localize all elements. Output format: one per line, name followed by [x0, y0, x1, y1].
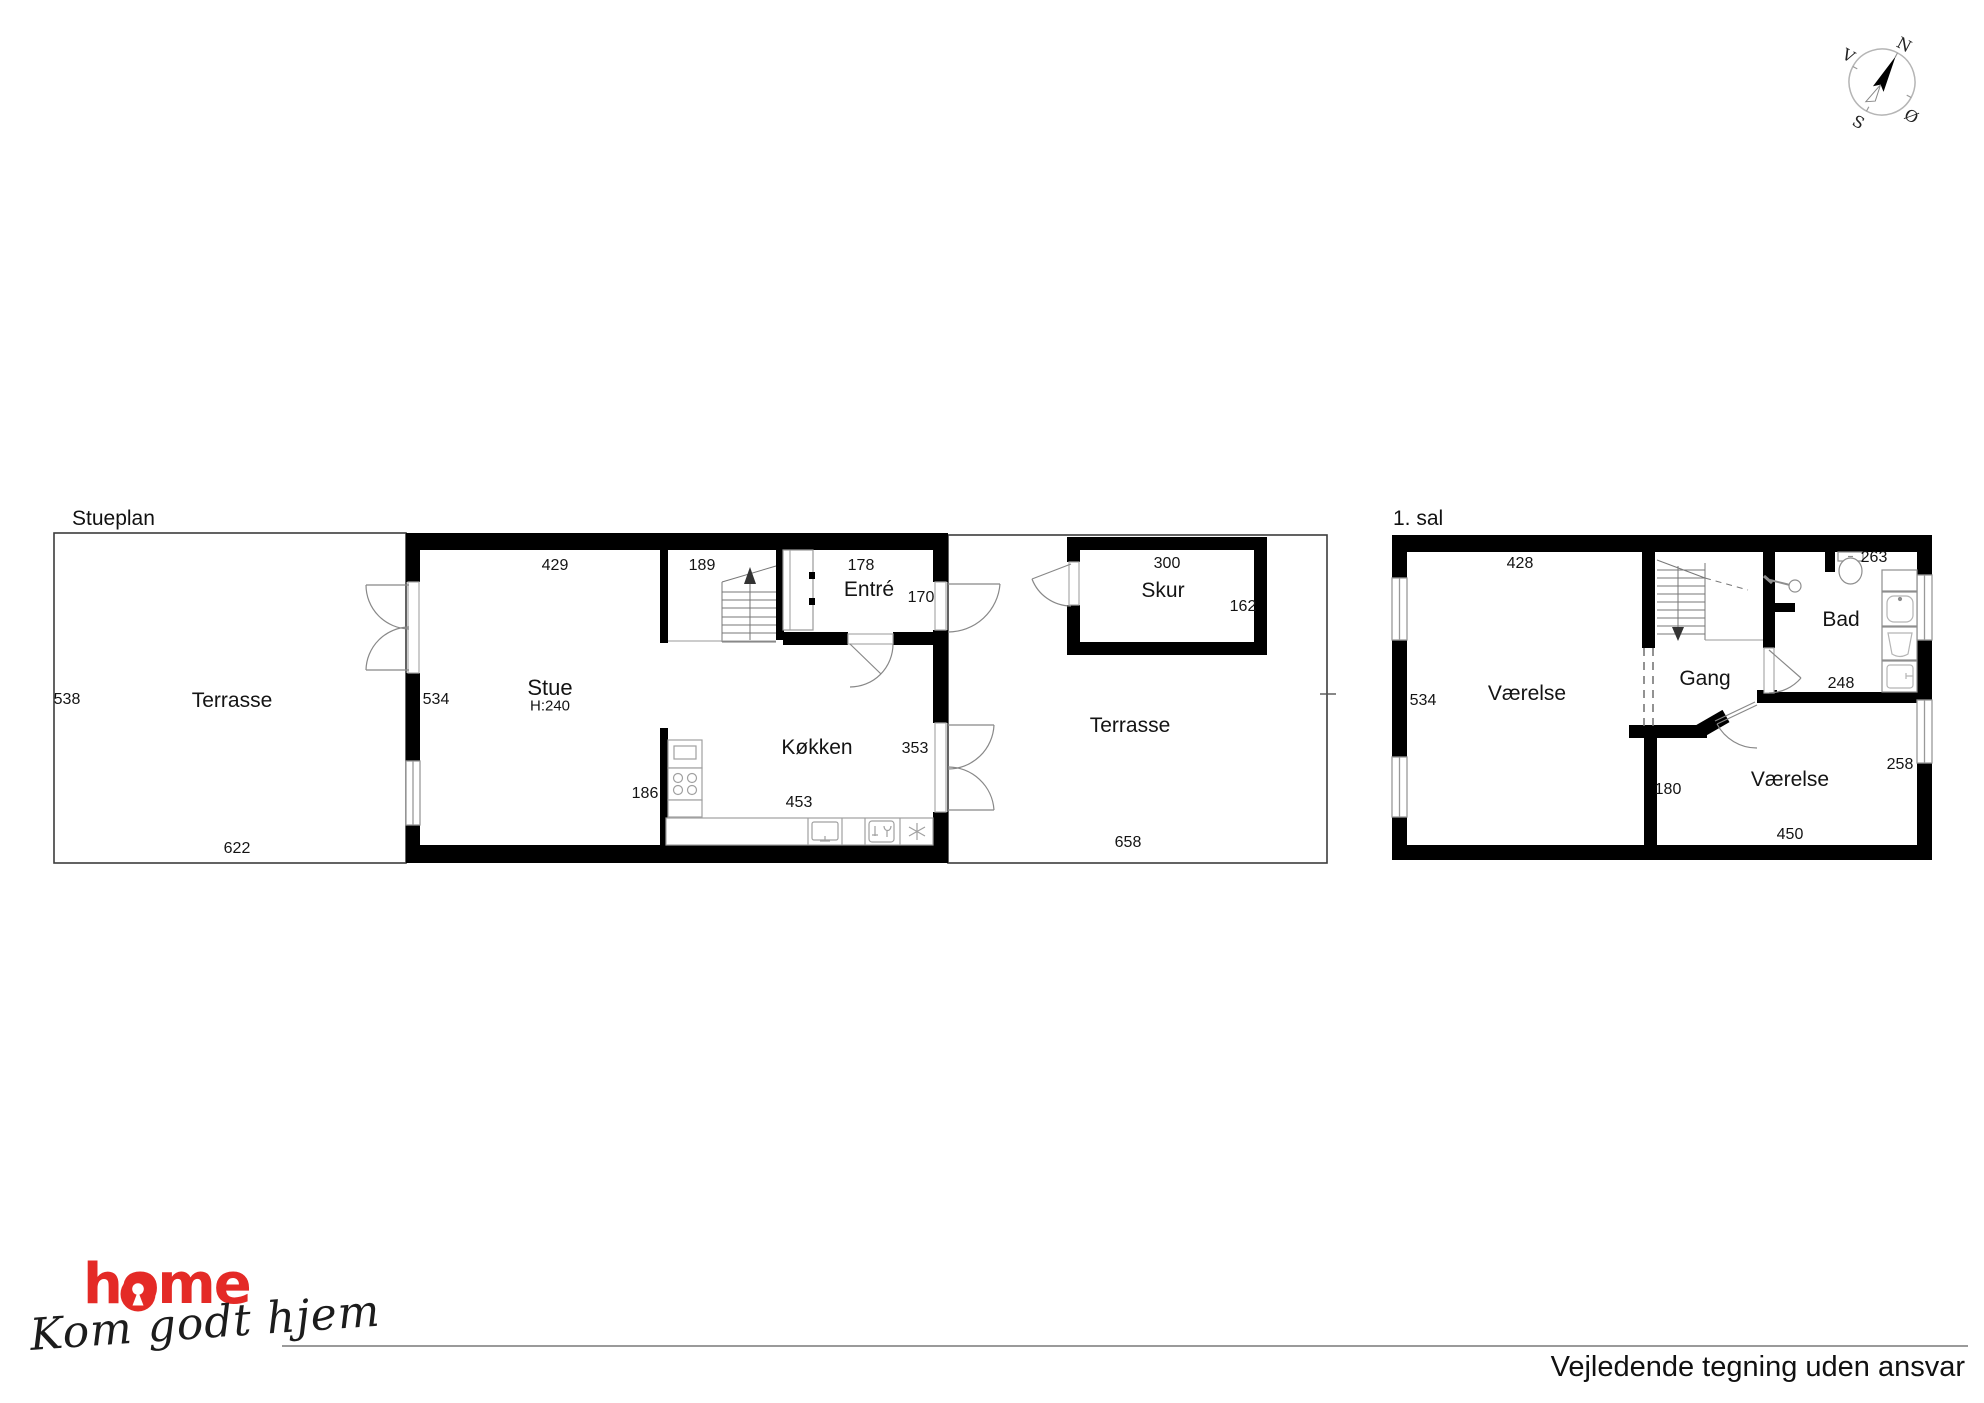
stairs-up-arrow [744, 567, 756, 584]
bath-cabinet-icon [1882, 570, 1917, 591]
dashed-wall [1644, 648, 1653, 727]
dim-stue-534: 534 [423, 691, 450, 709]
stue-terrace-door-leaf-top [366, 585, 409, 629]
shower-head-icon [1789, 580, 1801, 592]
ceiling-height-label: H:240 [530, 698, 570, 715]
floorplan-page: N Ø S V Stueplan 1. sal 538 Terrasse 622… [0, 0, 1984, 1403]
dim-bad-263: 263 [1861, 549, 1888, 567]
entrance-door-swing [948, 584, 1000, 632]
room-label-skur: Skur [1141, 579, 1184, 603]
room-label-entre: Entré [844, 578, 894, 602]
dishwasher-icon [869, 821, 894, 842]
entre-closet [783, 550, 815, 630]
stue-terrace-door-leaf-bottom [366, 627, 409, 670]
room-label-kokken: Køkken [781, 736, 852, 760]
dim-room-right-258: 258 [1887, 756, 1914, 774]
first-floor-door-jambs [1764, 648, 1774, 693]
dim-kitchen-186: 186 [632, 785, 659, 803]
terrace-right-outline [948, 535, 1327, 863]
dim-room-left-534: 534 [1410, 692, 1437, 710]
room-label-bad: Bad [1822, 608, 1859, 632]
compass-rose: N Ø S V [1813, 12, 1950, 154]
compass-label-east: Ø [1901, 105, 1922, 128]
dim-terrace-right-658: 658 [1115, 834, 1142, 852]
skur-door-swing [1032, 564, 1071, 606]
ground-floor-door-swings [366, 564, 1071, 810]
dim-kitchen-353: 353 [902, 740, 929, 758]
dim-room-right-180: 180 [1655, 781, 1682, 799]
ground-floor-stairs [668, 566, 776, 642]
dim-stue-429: 429 [542, 557, 569, 575]
dim-entre-170: 170 [908, 589, 935, 607]
first-floor-title: 1. sal [1393, 507, 1443, 531]
ground-floor-title: Stueplan [72, 507, 155, 531]
room-label-vaerelse-right: Værelse [1751, 768, 1829, 792]
dim-room-right-450: 450 [1777, 826, 1804, 844]
entre-kitchen-door-swing [850, 644, 893, 687]
dim-stairs-189: 189 [689, 557, 716, 575]
room-label-gang: Gang [1679, 667, 1730, 691]
compass-label-south: S [1849, 111, 1868, 133]
room-label-vaerelse-left: Værelse [1488, 682, 1566, 706]
room-label-terrasse-right: Terrasse [1090, 714, 1171, 738]
kitchen-terrace-door-leaf-bottom [948, 767, 994, 810]
room-label-terrasse-left: Terrasse [192, 689, 273, 713]
dim-skur-162: 162 [1230, 598, 1257, 616]
dim-kitchen-453: 453 [786, 794, 813, 812]
floorplan-drawing: N Ø S V [0, 0, 1984, 1403]
ground-floor-windows [406, 761, 420, 825]
cooktop-icon [668, 768, 702, 800]
dim-bad-248: 248 [1828, 675, 1855, 693]
disclaimer-text: Vejledende tegning uden ansvar [1551, 1351, 1965, 1384]
dim-entre-178: 178 [848, 557, 875, 575]
kitchen-terrace-door-leaf-top [948, 725, 994, 769]
dim-terrace-left-538: 538 [54, 691, 81, 709]
dim-terrace-left-622: 622 [224, 840, 251, 858]
toilet-bowl-icon [1839, 558, 1862, 584]
footer-divider [282, 1345, 1968, 1347]
dim-room-left-428: 428 [1507, 555, 1534, 573]
dim-skur-300: 300 [1154, 555, 1181, 573]
first-floor-plan [1392, 535, 1932, 860]
